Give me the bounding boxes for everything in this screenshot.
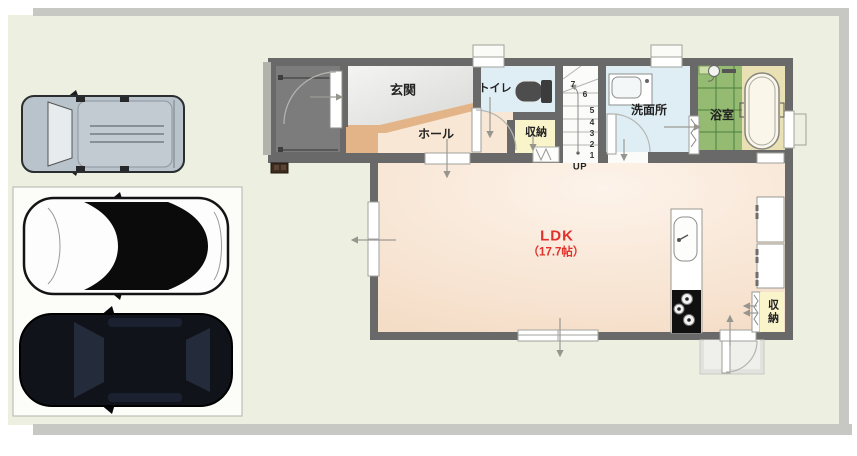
stair-step-5: 5: [590, 105, 595, 115]
kitchen-island: [671, 209, 702, 333]
black-car-topview: [20, 306, 232, 414]
stair-step-4: 4: [590, 117, 595, 127]
porch-step-strip: [263, 62, 271, 155]
frame-band-bottom: [33, 424, 852, 435]
floorplan-drawing: [0, 0, 857, 456]
label-entrance: 玄関: [390, 84, 416, 97]
label-bathroom: 浴室: [710, 109, 734, 121]
toilet-fixture: [515, 80, 552, 103]
stair-step-3: 3: [590, 128, 595, 138]
floorplan-page: 玄関 トイレ ホール 収納 洗面所 浴室 LDK （17.7帖） 収納 7 6 …: [0, 0, 857, 456]
van-topview: [22, 90, 184, 176]
stair-step-7: 7: [571, 79, 576, 89]
white-car-topview: [24, 192, 228, 300]
label-ldk: LDK: [540, 229, 574, 244]
washroom-sink: [609, 74, 652, 105]
stair-step-6: 6: [583, 89, 588, 99]
stair-step-1: 1: [590, 150, 595, 160]
label-hall-storage: 収納: [525, 128, 547, 139]
label-hall: ホール: [418, 128, 454, 140]
label-ldk-size: （17.7帖）: [528, 247, 585, 259]
stair-step-2: 2: [590, 139, 595, 149]
label-washroom: 洗面所: [631, 104, 667, 116]
label-kitchen-storage: 収納: [767, 299, 778, 325]
wall-cabinets: [756, 197, 785, 288]
bathtub: [740, 73, 784, 149]
frame-band-right: [839, 8, 849, 434]
label-toilet: トイレ: [479, 84, 512, 95]
frame-band-top: [33, 8, 845, 16]
stairs-up-label: UP: [573, 162, 587, 173]
